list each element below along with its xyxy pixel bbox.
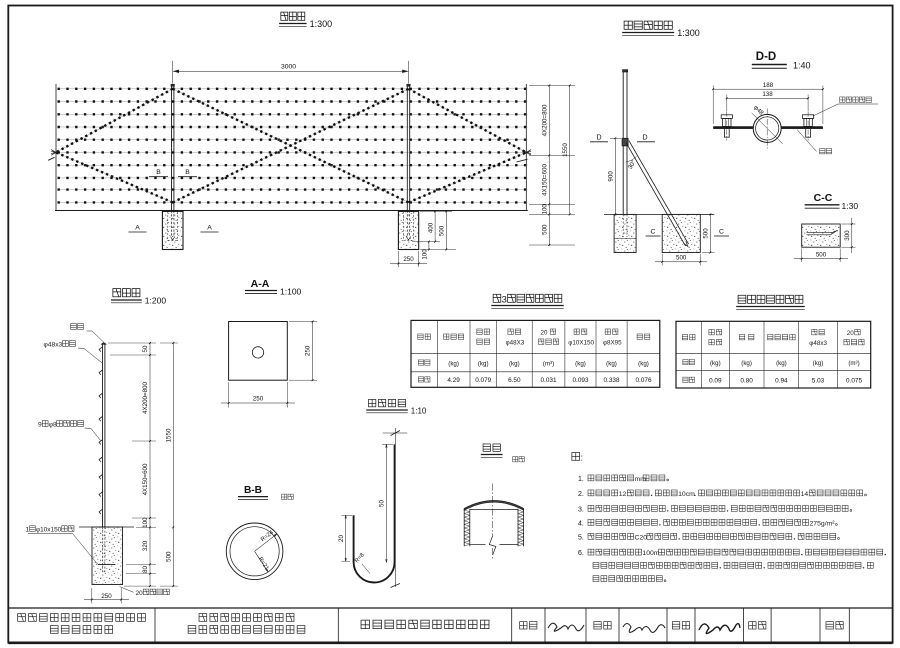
svg-text:(kg): (kg) — [813, 360, 824, 367]
svg-text:50: 50 — [142, 345, 149, 352]
svg-text:1:300: 1:300 — [310, 19, 333, 29]
svg-text:0.093: 0.093 — [573, 377, 589, 384]
svg-text:(kg): (kg) — [509, 360, 520, 367]
svg-text:0.338: 0.338 — [604, 377, 620, 384]
svg-text:100: 100 — [542, 204, 549, 215]
svg-text:300: 300 — [844, 230, 851, 241]
svg-text:D-D: D-D — [756, 51, 776, 63]
svg-text:10cm: 10cm — [678, 491, 695, 498]
svg-text:250: 250 — [101, 593, 112, 600]
svg-text:(kg): (kg) — [741, 360, 752, 367]
svg-text:3: 3 — [502, 295, 507, 305]
svg-text:6.: 6. — [578, 550, 584, 557]
svg-text:50: 50 — [379, 500, 386, 507]
svg-text:(kg): (kg) — [448, 360, 459, 367]
svg-text:250: 250 — [253, 395, 264, 402]
svg-text:B: B — [185, 169, 190, 176]
svg-text:D: D — [642, 135, 647, 142]
svg-text:mm: mm — [635, 476, 647, 483]
svg-text:B: B — [156, 169, 161, 176]
svg-text:3000: 3000 — [281, 63, 296, 70]
svg-text:500: 500 — [542, 224, 549, 235]
svg-text:C20: C20 — [635, 535, 648, 542]
svg-text:0.079: 0.079 — [475, 377, 491, 384]
svg-text:C: C — [651, 229, 656, 236]
svg-text:20: 20 — [338, 535, 345, 542]
svg-text:(m³): (m³) — [543, 360, 554, 367]
svg-text:φ10X150: φ10X150 — [568, 340, 594, 347]
svg-text:(kg): (kg) — [606, 360, 617, 367]
svg-text:1550: 1550 — [165, 428, 172, 442]
svg-text:1:30: 1:30 — [842, 201, 859, 211]
svg-text:φ8: φ8 — [49, 422, 57, 429]
svg-text:0.075: 0.075 — [846, 378, 862, 385]
svg-text:0.031: 0.031 — [541, 377, 557, 384]
svg-text:A-A: A-A — [251, 278, 270, 290]
svg-text:6.50: 6.50 — [508, 377, 521, 384]
svg-text:500: 500 — [165, 551, 172, 562]
svg-text:900: 900 — [607, 171, 614, 182]
svg-text:A: A — [207, 225, 212, 232]
svg-text:100: 100 — [421, 249, 428, 260]
svg-text:9: 9 — [38, 422, 42, 429]
svg-text:φ48x3: φ48x3 — [44, 342, 63, 349]
svg-text:C: C — [719, 229, 724, 236]
svg-text:400: 400 — [427, 222, 434, 233]
svg-text:500: 500 — [439, 225, 446, 236]
svg-text:12: 12 — [619, 491, 627, 498]
svg-text:B-B: B-B — [244, 485, 262, 496]
svg-text:1:300: 1:300 — [677, 28, 700, 38]
svg-text:1: 1 — [26, 527, 30, 534]
svg-text:(kg): (kg) — [710, 360, 721, 367]
svg-text:138: 138 — [762, 91, 773, 98]
svg-text:188: 188 — [763, 82, 774, 89]
svg-text:500: 500 — [676, 254, 687, 261]
svg-text:4X200=800: 4X200=800 — [542, 104, 549, 136]
svg-text:275g/m²: 275g/m² — [810, 521, 836, 528]
svg-text:500: 500 — [816, 251, 827, 258]
svg-text:1.: 1. — [578, 476, 584, 483]
svg-text:(m³): (m³) — [848, 360, 859, 367]
svg-text:φ8X95: φ8X95 — [603, 340, 622, 347]
svg-text:320: 320 — [142, 540, 149, 551]
svg-text:(kg): (kg) — [776, 360, 787, 367]
svg-text:20: 20 — [541, 330, 548, 337]
svg-text:1:200: 1:200 — [145, 296, 167, 306]
svg-text:20: 20 — [847, 330, 854, 337]
svg-text:0.09: 0.09 — [709, 378, 722, 385]
svg-text:4X200=800: 4X200=800 — [142, 382, 149, 414]
svg-text:100m: 100m — [642, 550, 659, 557]
svg-text:0.80: 0.80 — [740, 378, 753, 385]
svg-text:1:40: 1:40 — [793, 61, 811, 71]
svg-text:φ10x150: φ10x150 — [36, 527, 62, 534]
svg-text:φ48x3: φ48x3 — [809, 340, 827, 347]
svg-text:20: 20 — [136, 590, 144, 597]
svg-text:80: 80 — [142, 566, 149, 573]
svg-text:C-C: C-C — [814, 192, 833, 204]
svg-text:0.94: 0.94 — [775, 378, 788, 385]
svg-text:2.: 2. — [578, 491, 584, 498]
svg-text:(kg): (kg) — [575, 360, 586, 367]
svg-text:5.: 5. — [578, 535, 584, 542]
svg-text:D: D — [596, 135, 601, 142]
svg-text::: : — [581, 453, 584, 463]
svg-text:5.03: 5.03 — [812, 378, 825, 385]
svg-text:(kg): (kg) — [478, 360, 489, 367]
svg-text:3.: 3. — [578, 507, 584, 514]
svg-text:1:100: 1:100 — [280, 287, 302, 297]
svg-text:φ48X3: φ48X3 — [506, 340, 525, 347]
svg-text:14: 14 — [801, 491, 809, 498]
svg-text:100: 100 — [142, 517, 149, 528]
svg-text:4X150=600: 4X150=600 — [542, 164, 549, 196]
svg-text:250: 250 — [305, 345, 312, 356]
svg-text:1550: 1550 — [562, 143, 569, 157]
svg-text:4.: 4. — [578, 521, 584, 528]
svg-text:(kg): (kg) — [638, 360, 649, 367]
svg-text:4.29: 4.29 — [447, 377, 460, 384]
svg-text:500: 500 — [702, 228, 709, 239]
svg-text:4X150=600: 4X150=600 — [142, 463, 149, 495]
svg-text:1:10: 1:10 — [411, 407, 427, 416]
svg-text:A: A — [135, 225, 140, 232]
svg-text:250: 250 — [403, 256, 414, 263]
svg-text:0.076: 0.076 — [636, 377, 652, 384]
